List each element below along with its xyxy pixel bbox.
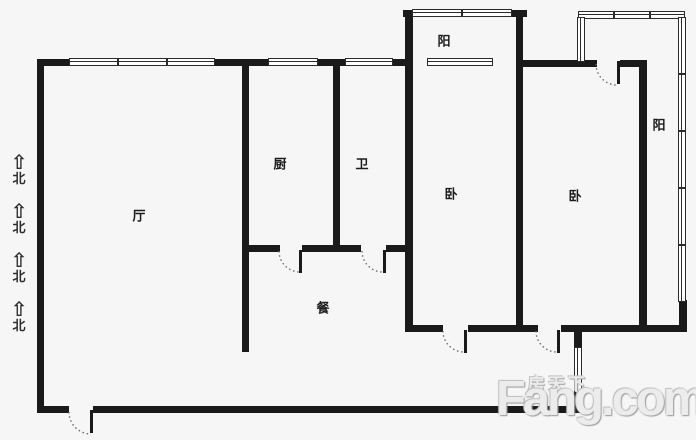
room-label-kitchen: 厨: [273, 154, 286, 173]
north-label: 北: [5, 320, 33, 333]
door-arc: [362, 251, 383, 272]
door-arc: [69, 412, 91, 434]
north-label: 北: [5, 222, 33, 235]
room-label-bathroom: 卫: [355, 154, 368, 173]
room-label-balcony-right: 阳: [652, 115, 665, 134]
room-label-dining: 餐: [316, 298, 329, 317]
door-arc: [596, 64, 617, 85]
north-label: 北: [5, 173, 33, 186]
door-arc: [536, 331, 557, 352]
room-label-balcony-top: 阳: [437, 31, 450, 50]
north-indicator: ⇧ 北: [5, 152, 33, 186]
north-arrow-icon: ⇧: [5, 152, 33, 172]
north-arrow-icon: ⇧: [5, 201, 33, 221]
north-arrow-icon: ⇧: [5, 299, 33, 319]
floorplan: 厅 厨 卫 卧 卧 阳 阳 餐 ⇧ 北 ⇧ 北 ⇧ 北 ⇧ 北 房天下 Fang…: [0, 0, 696, 440]
door-arc: [279, 251, 300, 272]
north-indicator: ⇧ 北: [5, 201, 33, 235]
room-label-living: 厅: [132, 206, 145, 225]
room-label-bedroom-2: 卧: [568, 186, 581, 205]
room-label-bedroom-1: 卧: [444, 184, 457, 203]
door-arc: [443, 331, 464, 352]
north-arrow-icon: ⇧: [5, 250, 33, 270]
door-arcs-layer: [0, 0, 696, 440]
north-label: 北: [5, 271, 33, 284]
north-indicator: ⇧ 北: [5, 250, 33, 284]
north-indicator: ⇧ 北: [5, 299, 33, 333]
